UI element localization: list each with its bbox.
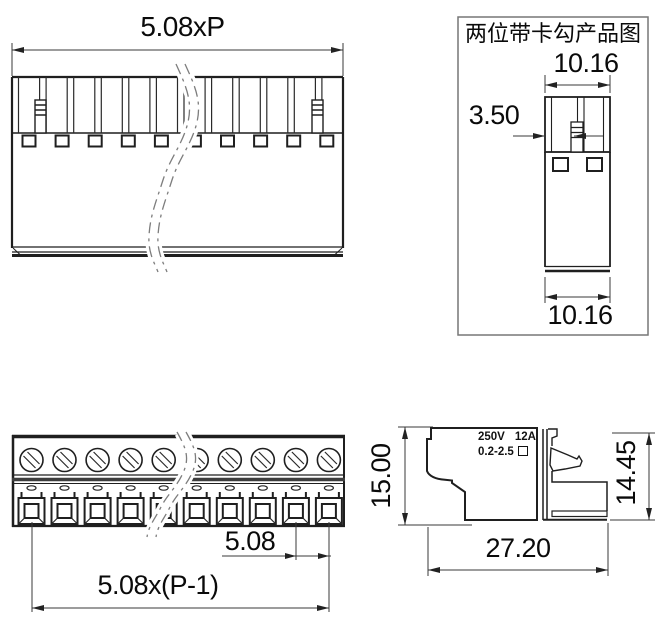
- rear-outline: [552, 471, 607, 511]
- rating-line2: 0.2-2.5: [478, 445, 536, 460]
- wire-range: 0.2-2.5: [478, 446, 514, 458]
- top-view-drawing: 5.08xP: [0, 0, 360, 290]
- top-view-ribs: [19, 77, 322, 133]
- cavity-inner-frames: [25, 504, 336, 518]
- rating-marking: 250V12A 0.2-2.5: [478, 430, 536, 460]
- voltage-rating: 250V: [478, 431, 505, 443]
- panel-square-openings: [553, 158, 602, 171]
- latch-left: [35, 100, 46, 133]
- current-rating: 12A: [515, 431, 536, 443]
- panel-latch-dim-label: 3.50: [458, 101, 530, 129]
- plug-front-view: 5.08 5.08x(P-1): [0, 415, 360, 623]
- side-view-drawing: 15.00 14.45 27.20 250V12A 0.2-2.5: [360, 415, 672, 623]
- pitch-dim-label: 5.08: [214, 527, 286, 555]
- terminal-block-drawing: 5.08xP: [0, 0, 672, 623]
- panel-top-dim-label: 10.16: [536, 49, 636, 77]
- break-line: [147, 432, 196, 537]
- latch-right: [312, 100, 323, 133]
- depth-dim-label: 27.20: [475, 534, 561, 562]
- pin-strip: [552, 511, 607, 517]
- height-dim-label: 15.00: [365, 416, 397, 536]
- cavity-outer-frames: [19, 498, 342, 524]
- wire-cross-section-icon: [518, 446, 528, 456]
- rating-line1: 250V12A: [478, 430, 536, 445]
- top-view-width-dim-label: 5.08xP: [110, 12, 255, 41]
- latch-hook: [550, 448, 582, 471]
- panel-bottom-dim-label: 10.16: [530, 301, 630, 329]
- panel-title: 两位带卡勾产品图: [459, 22, 647, 46]
- top-view-bottom-strip: [12, 247, 343, 256]
- interface-lines: [543, 429, 547, 520]
- rear-height-dim-label: 14.45: [610, 413, 642, 533]
- top-view-linework: [0, 0, 360, 290]
- span-dim-label: 5.08x(P-1): [78, 571, 238, 599]
- two-position-panel: 两位带卡勾产品图 10.16 3.50 10.16: [440, 0, 672, 350]
- latch-root: [548, 429, 557, 446]
